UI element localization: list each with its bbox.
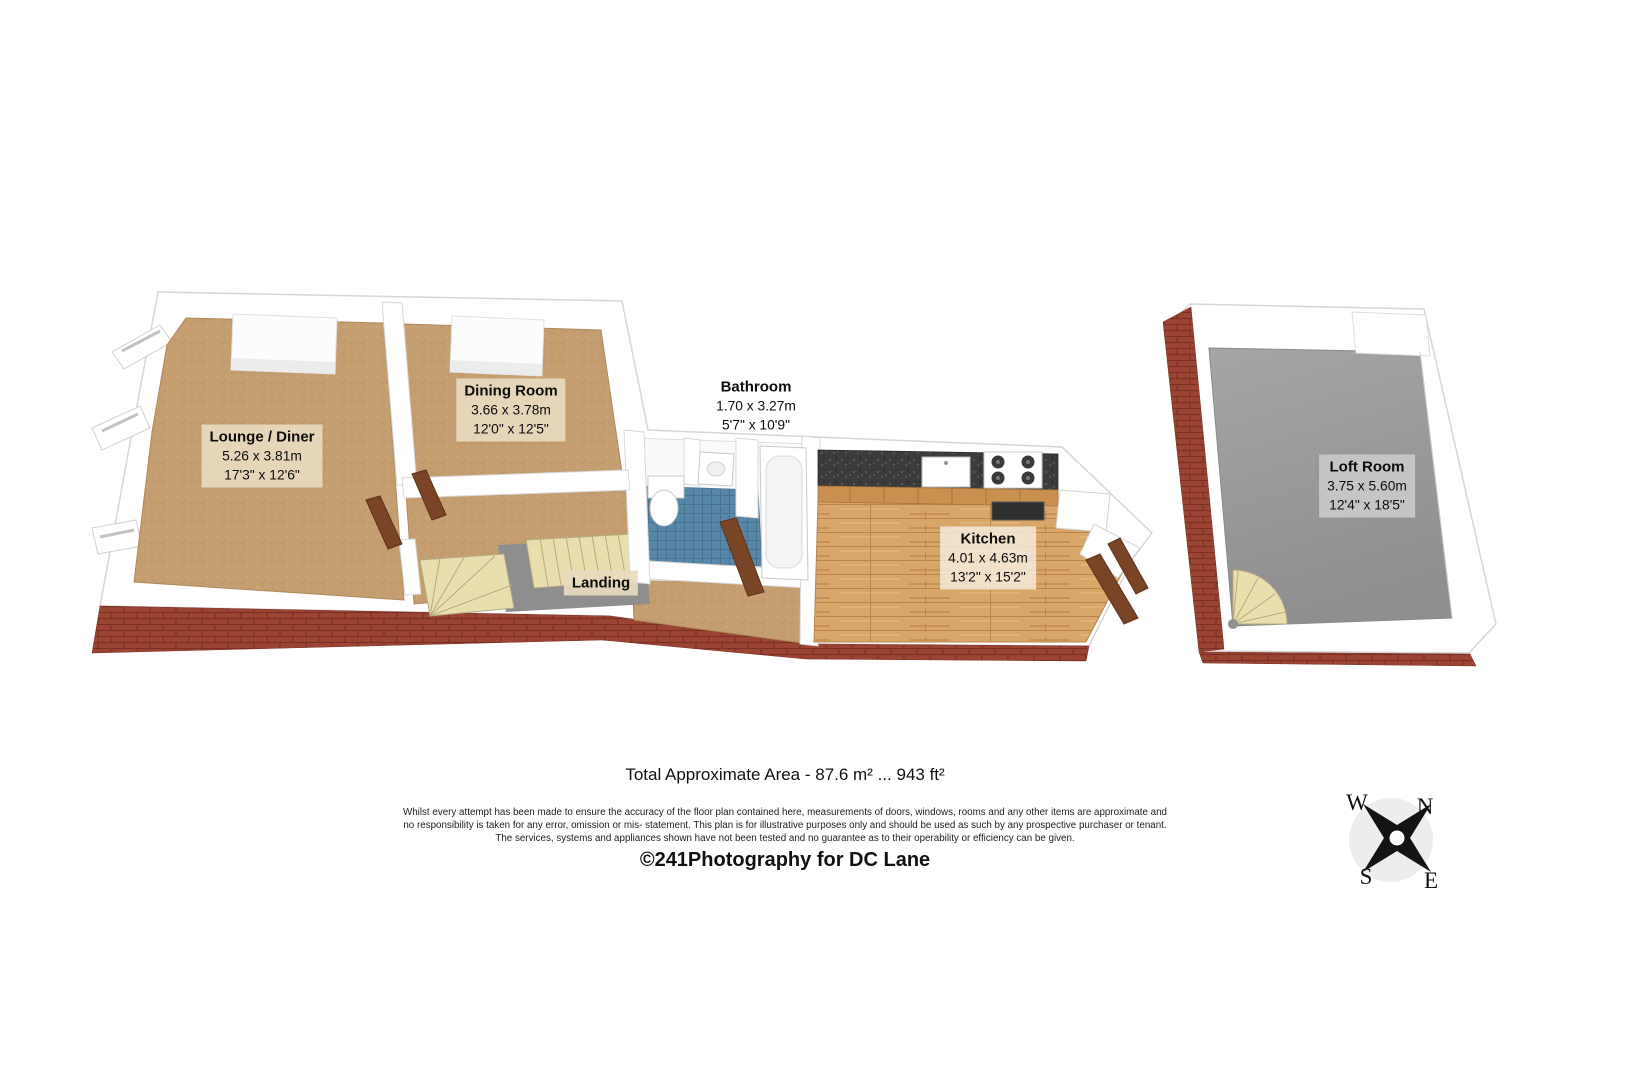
disclaimer-line-2: no responsibility is taken for any error… <box>0 819 1570 832</box>
room-name: Loft Room <box>1327 458 1407 477</box>
room-label-dining-room: Dining Room 3.66 x 3.78m 12'0" x 12'5" <box>456 379 565 442</box>
room-size-metric: 1.70 x 3.27m <box>716 397 796 416</box>
total-area-text: Total Approximate Area - 87.6 m² ... 943… <box>0 765 1570 785</box>
room-size-imperial: 12'0" x 12'5" <box>464 420 557 439</box>
room-name: Dining Room <box>464 382 557 401</box>
room-size-imperial: 5'7" x 10'9" <box>716 416 796 435</box>
room-name: Bathroom <box>716 378 796 397</box>
loft-brick-bottom <box>1199 652 1476 666</box>
room-size-metric: 3.66 x 3.78m <box>464 401 557 420</box>
wall-stub <box>736 438 758 518</box>
room-size-metric: 5.26 x 3.81m <box>210 447 315 466</box>
room-size-imperial: 17'3" x 12'6" <box>210 466 315 485</box>
room-name: Landing <box>572 574 630 593</box>
bathtub <box>760 446 808 580</box>
room-label-loft-room: Loft Room 3.75 x 5.60m 12'4" x 18'5" <box>1319 455 1415 518</box>
disclaimer-line-1: Whilst every attempt has been made to en… <box>0 806 1570 819</box>
kitchen-hob <box>984 452 1042 488</box>
basin-sink <box>698 452 734 486</box>
room-label-bathroom: Bathroom 1.70 x 3.27m 5'7" x 10'9" <box>708 375 804 438</box>
room-name: Lounge / Diner <box>210 428 315 447</box>
disclaimer-line-3: The services, systems and appliances sho… <box>0 832 1570 845</box>
loft-dormer-block <box>1352 312 1430 356</box>
floorplan-drawing: W N S E <box>0 0 1629 1080</box>
room-label-kitchen: Kitchen 4.01 x 4.63m 13'2" x 15'2" <box>940 527 1036 590</box>
disclaimer-text: Whilst every attempt has been made to en… <box>0 806 1570 845</box>
kitchen-sink <box>922 457 970 487</box>
wall-stub <box>684 438 700 486</box>
room-name: Kitchen <box>948 530 1028 549</box>
room-label-lounge-diner: Lounge / Diner 5.26 x 3.81m 17'3" x 12'6… <box>202 425 323 488</box>
credit-text: ©241Photography for DC Lane <box>0 849 1570 872</box>
room-size-imperial: 13'2" x 15'2" <box>948 568 1028 587</box>
room-size-metric: 4.01 x 4.63m <box>948 549 1028 568</box>
room-size-imperial: 12'4" x 18'5" <box>1327 496 1407 515</box>
room-label-landing: Landing <box>564 571 638 596</box>
floorplan-page: W N S E Lounge / Diner 5.26 x 3.81m 17'3… <box>0 0 1629 1080</box>
room-size-metric: 3.75 x 5.60m <box>1327 477 1407 496</box>
